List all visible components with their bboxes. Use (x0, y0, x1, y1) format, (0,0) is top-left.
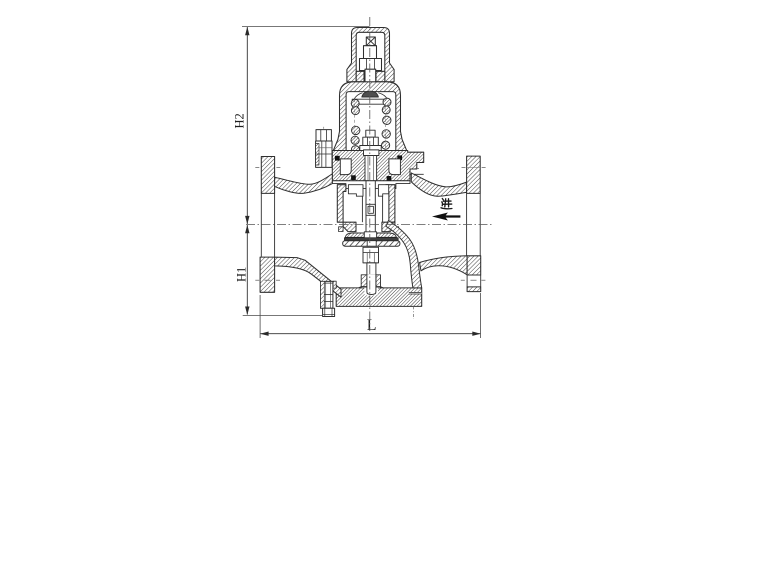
svg-text:H1: H1 (235, 267, 249, 282)
svg-text:L: L (367, 317, 377, 334)
svg-text:H2: H2 (233, 113, 247, 128)
